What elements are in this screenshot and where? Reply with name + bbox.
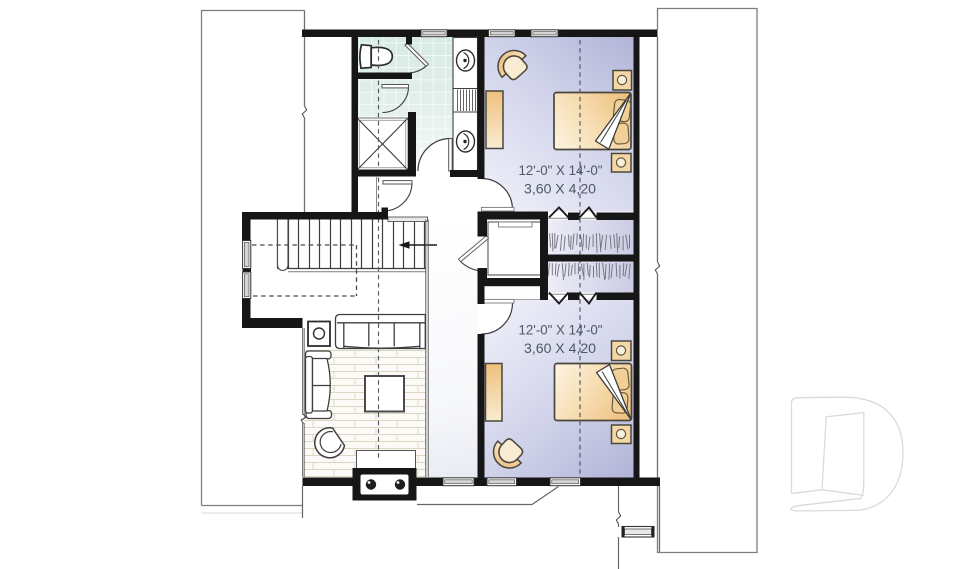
svg-text:12'-0" X 14'-0": 12'-0" X 14'-0" (519, 322, 603, 338)
svg-text:3,60 X 4,20: 3,60 X 4,20 (524, 181, 596, 197)
svg-text:12'-0" X 14'-0": 12'-0" X 14'-0" (519, 162, 603, 178)
svg-text:3,60 X 4,20: 3,60 X 4,20 (524, 340, 596, 356)
